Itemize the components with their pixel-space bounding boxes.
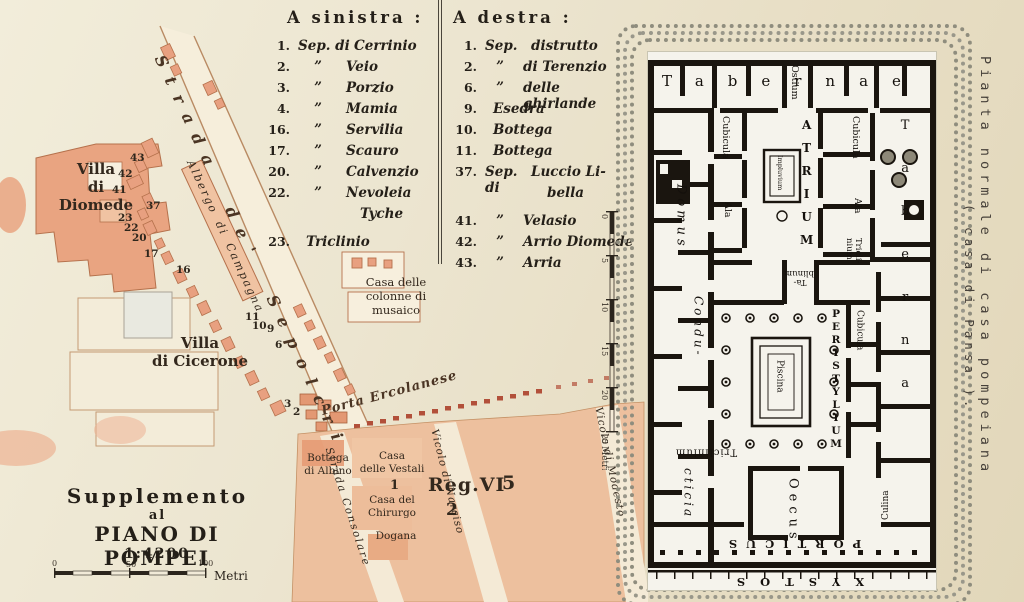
plan-caption-subtitle: ( casa di Pansa ). xyxy=(962,34,977,582)
legend-item: 4.”Mamia xyxy=(260,101,438,122)
label-triclinium-right: Tricli- nium xyxy=(844,238,862,294)
label-domus: Domus xyxy=(674,184,688,280)
tomb-number: 10 xyxy=(252,320,267,332)
label-oecus: Oecus xyxy=(786,478,800,538)
label-ala-right: Ala xyxy=(852,198,862,234)
label-taberna-right: Taberna xyxy=(898,118,912,448)
tomb-number: 17 xyxy=(144,248,159,260)
label-piscina: Piscina xyxy=(774,360,783,410)
legend-right-title: A destra : xyxy=(453,8,572,27)
label-ala-left: Ala xyxy=(722,202,732,240)
label-villa-cicerone: Villa di Cicerone xyxy=(142,334,258,370)
tomb-number: 9 xyxy=(267,323,274,335)
svg-text:20: 20 xyxy=(600,390,609,400)
svg-text:5: 5 xyxy=(600,258,609,263)
tomb-number: 2 xyxy=(293,406,300,418)
legend-left-list: 1.Sep. diCerrinio 2.”Veio 3.”Porzio 4.”M… xyxy=(260,38,438,255)
label-culina: Culina xyxy=(882,476,891,520)
legend-item: 2.”Veio xyxy=(260,59,438,80)
tomb-number: 43 xyxy=(130,152,145,164)
legend-item: 22.”Nevoleia xyxy=(260,185,438,206)
tomb-number: 42 xyxy=(118,168,133,180)
label-cticia: cticia xyxy=(682,468,695,534)
legend-item: 6.”delle ghirlande xyxy=(447,80,637,101)
tomb-number: 37 xyxy=(146,200,161,212)
svg-text:Metri: Metri xyxy=(599,446,609,470)
tomb-number: 6 xyxy=(275,339,282,351)
legend-item: 1.Sep. diCerrinio xyxy=(260,38,438,59)
legend-item: 3.”Porzio xyxy=(260,80,438,101)
label-tablinum: Ta- blinum xyxy=(786,268,814,286)
legend-item: 10.Bottega xyxy=(447,122,637,143)
legend-divider xyxy=(438,0,442,264)
label-triclinium-bottom: Triclinium xyxy=(660,446,752,457)
house-plan-panel: Tabernae Ostium ATRIUM Impluvium Cubicul… xyxy=(648,52,936,590)
legend-item: 11.Bottega xyxy=(447,143,637,164)
svg-text:10: 10 xyxy=(600,302,609,312)
map-scale-ratio: 1:4200 xyxy=(42,546,272,562)
label-reg-vi-2: 2 xyxy=(446,500,458,520)
legend-item: 20.”Calvenzio xyxy=(260,164,438,185)
label-cubicula-left: Cubicula xyxy=(720,116,730,194)
legend-item: 16.”Servilia xyxy=(260,122,438,143)
label-dogana: Dogana xyxy=(364,530,428,543)
tomb-number: 41 xyxy=(112,184,127,196)
svg-text:15: 15 xyxy=(600,346,609,356)
label-porticus: PORTICUS xyxy=(678,538,903,550)
tomb-number: 20 xyxy=(132,232,147,244)
label-cubicula-peristyle: Cubicula xyxy=(854,310,863,410)
label-atrium: ATRIUM xyxy=(800,118,813,260)
label-peristylium: PERISTYLIUM xyxy=(830,308,841,460)
svg-text:Metri: Metri xyxy=(214,569,248,583)
map-title-line1: Supplemento xyxy=(60,484,255,508)
label-cubicula-atrium-right: Cubicula xyxy=(850,116,860,194)
map-title-line2: al xyxy=(60,508,255,523)
legend-item: 1.Sep.distrutto xyxy=(447,38,637,59)
label-casa-colonne: Casa delle colonne di musaico xyxy=(348,276,444,317)
legend-item: Tyche xyxy=(260,206,438,227)
label-reg-vi-5: 5 xyxy=(502,472,515,495)
label-reg-vi: Reg.VI xyxy=(428,474,505,497)
svg-text:0: 0 xyxy=(600,214,609,219)
label-impluvium: Impluvium xyxy=(776,155,783,199)
legend-left-title: A sinistra : xyxy=(287,8,424,27)
label-ostium: Ostium xyxy=(789,65,799,111)
label-casa-chirurgo: Casa del Chirurgo xyxy=(350,494,434,519)
plan-caption-title: Pianta normale di casa pompeiana xyxy=(977,34,993,582)
label-xystos: XYSTOS xyxy=(703,576,883,588)
scanned-map-page: 0 50 100 Metri Villa di Diomede Strada d… xyxy=(0,0,1024,602)
legend-item: 17.”Scauro xyxy=(260,143,438,164)
plan-left-scale: 0 5 10 15 20 25 Metri xyxy=(596,198,622,470)
legend-item: 23.Triclinio xyxy=(260,234,438,255)
tomb-number: 16 xyxy=(176,264,191,276)
label-vestali-number: 1 xyxy=(390,478,399,494)
svg-text:25: 25 xyxy=(600,434,609,444)
plan-caption: Pianta normale di casa pompeiana ( casa … xyxy=(962,34,993,582)
tomb-number: 3 xyxy=(284,398,291,410)
label-condu: Condu- xyxy=(692,296,705,388)
legend-item: 2.”di Terenzio xyxy=(447,59,637,80)
label-casa-vestali: Casa delle Vestali xyxy=(348,450,436,475)
legend-item: 37.Sep. diLuccio Li- xyxy=(447,164,637,185)
